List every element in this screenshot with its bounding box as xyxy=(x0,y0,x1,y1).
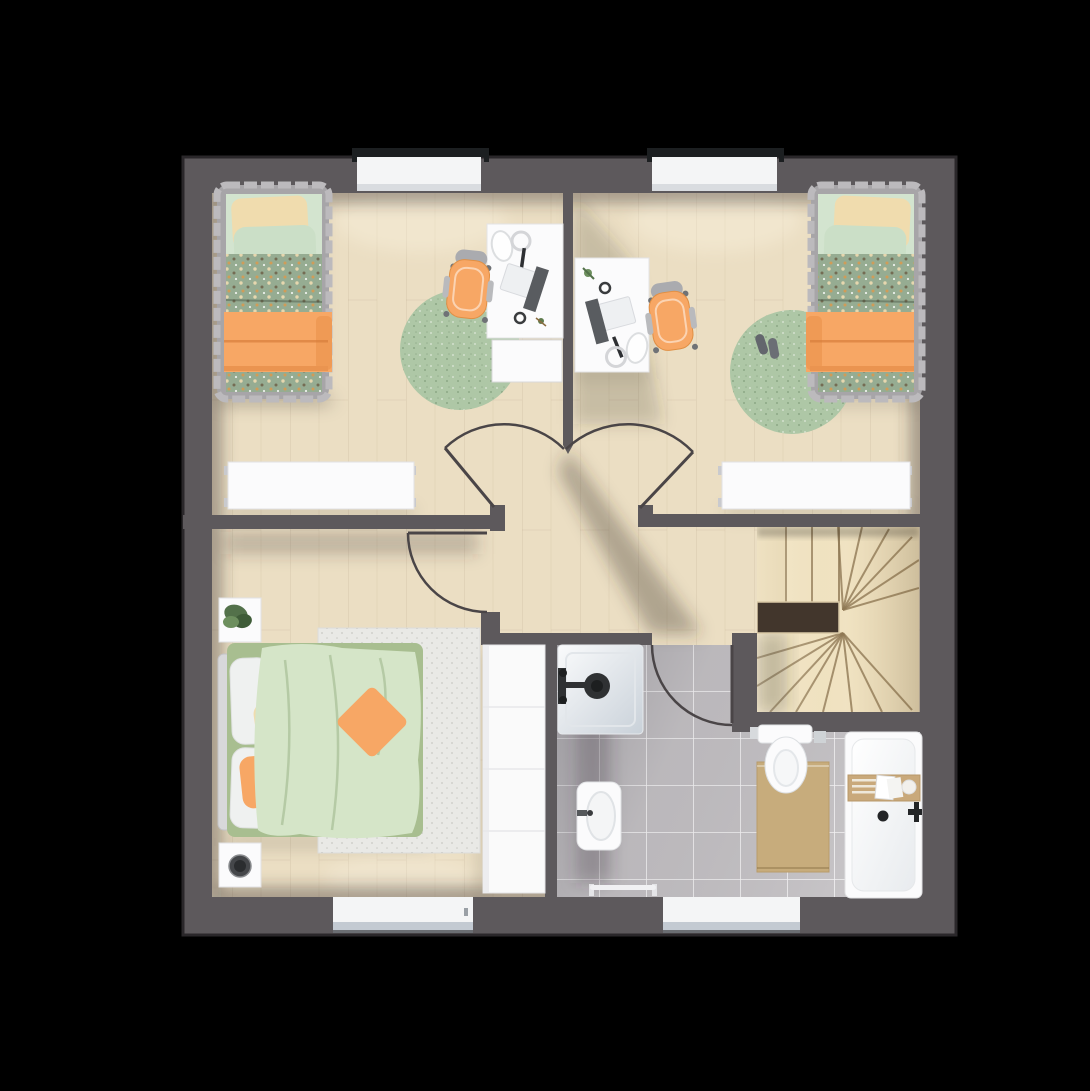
wall-hall-right xyxy=(638,514,920,527)
nightstand-with-plant xyxy=(219,598,261,642)
building xyxy=(183,148,956,935)
nightstand-with-speaker xyxy=(219,843,261,887)
desk xyxy=(575,258,650,372)
cup-icon xyxy=(515,313,525,323)
floor-plan-canvas xyxy=(0,0,1090,1091)
window-top-right xyxy=(647,148,784,191)
orange-blanket xyxy=(806,312,914,372)
wall-master-bathroom xyxy=(545,645,557,897)
sink xyxy=(577,782,621,850)
window-bottom-bathroom xyxy=(663,897,800,933)
orange-blanket xyxy=(224,312,332,372)
radiator xyxy=(224,462,416,509)
wall-divider-bedrooms xyxy=(563,193,573,445)
faucet-icon xyxy=(577,810,587,816)
single-bed xyxy=(806,185,922,399)
window-top-left xyxy=(352,148,489,191)
wall-hall-left xyxy=(183,515,505,529)
double-bed xyxy=(218,643,423,838)
wardrobe xyxy=(483,645,545,893)
radiator xyxy=(718,462,912,509)
stair-banister xyxy=(757,602,839,633)
bathtub xyxy=(845,732,922,898)
shower xyxy=(558,645,643,734)
staircase xyxy=(757,527,919,713)
floor-plan-svg xyxy=(0,0,1090,1091)
desk xyxy=(487,224,563,382)
soap-icon xyxy=(902,780,916,794)
wall-bathroom-top xyxy=(492,633,652,645)
bath-caddy xyxy=(848,775,920,801)
cup-icon xyxy=(600,283,610,293)
drain-icon xyxy=(878,811,889,822)
single-bed xyxy=(217,185,332,399)
window-bottom-master xyxy=(333,897,473,933)
